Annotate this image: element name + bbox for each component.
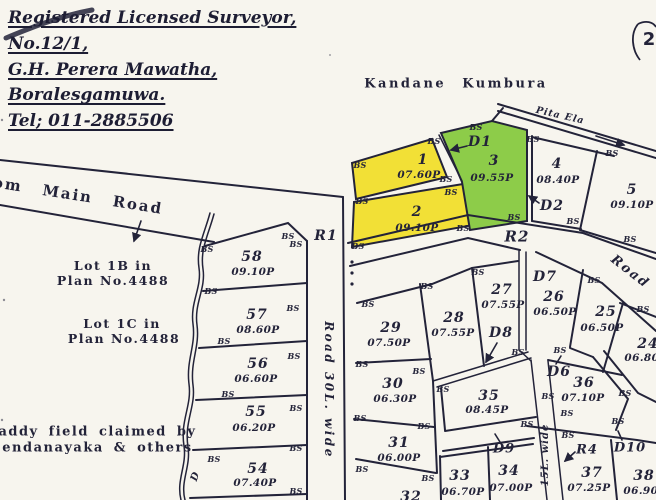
bs-marker: BS <box>588 275 601 285</box>
surveyor-phone: Tel; 011-2885506 <box>8 109 174 135</box>
lot-29-number: 29 <box>380 321 401 335</box>
bs-marker: BS <box>290 403 303 413</box>
drain-ref-d7: D7 <box>533 270 557 284</box>
bs-marker: BS <box>470 122 483 132</box>
road-ref-r4: R4 <box>576 444 598 457</box>
paddy-field-note-line1: Paddy field claimed by <box>0 426 196 439</box>
bs-marker: BS <box>554 345 567 355</box>
lot-28-area: 07.55P <box>431 328 474 339</box>
lot-30-area: 06.30P <box>373 394 416 405</box>
surveyor-town: Boralesgamuwa. <box>8 83 165 109</box>
drain-ref-d8: D8 <box>489 326 513 340</box>
bs-marker: BS <box>201 244 214 254</box>
survey-plan-scan: Registered Licensed Surveyor, No.12/1, G… <box>0 0 656 500</box>
lot-33-number: 33 <box>449 469 470 483</box>
surveyor-number: No.12/1, <box>8 32 88 58</box>
lot-2-number: 2 <box>412 205 423 219</box>
bs-marker: BS <box>362 299 375 309</box>
main-road-arrow <box>134 221 141 241</box>
kandane-kumbura-label: Kandane Kumbura <box>364 78 547 91</box>
bs-marker: BS <box>612 416 625 426</box>
lot-37-number: 37 <box>581 466 602 480</box>
lot-1-area: 07.60P <box>397 170 440 181</box>
lot-58-number: 58 <box>241 250 262 264</box>
lot-34-number: 34 <box>498 464 519 478</box>
bs-marker: BS <box>290 239 303 249</box>
lot-3-area: 09.55P <box>470 173 513 184</box>
bs-marker: BS <box>290 443 303 453</box>
bs-marker: BS <box>624 234 637 244</box>
bs-marker: BS <box>413 366 426 376</box>
bs-marker: BS <box>521 419 534 429</box>
lot-36-number: 36 <box>573 376 594 390</box>
lot-56-number: 56 <box>247 357 268 371</box>
lot-56-area: 06.60P <box>234 374 277 385</box>
bs-marker: BS <box>472 267 485 277</box>
bs-marker: BS <box>354 413 367 423</box>
lot-35-area: 08.45P <box>465 405 508 416</box>
r4-arrow <box>565 452 575 461</box>
lot-32-number: 32 <box>400 490 421 500</box>
lot-25-area: 06.50P <box>580 323 623 334</box>
lot-33-area: 06.70P <box>441 487 484 498</box>
bs-marker: BS <box>290 486 303 496</box>
bs-marker: BS <box>428 136 441 146</box>
paddy-field-note-line2: Sendanayaka & others <box>0 442 193 455</box>
lot-26-area: 06.50P <box>533 307 576 318</box>
lot-1-number: 1 <box>418 153 429 167</box>
road-30-wide-label: Road 30L. wide <box>323 321 335 459</box>
bs-marker: BS <box>637 304 650 314</box>
lot-30-number: 30 <box>382 377 403 391</box>
lot-31-number: 31 <box>388 436 409 450</box>
lot-1c-note-line2: Plan No.4488 <box>68 333 180 346</box>
bs-marker: BS <box>562 430 575 440</box>
road-ref-r1: R1 <box>314 229 337 243</box>
lot-24-area: 06.80P <box>624 353 656 364</box>
bs-marker: BS <box>561 408 574 418</box>
bs-marker: BS <box>457 223 470 233</box>
lot-35-number: 35 <box>478 389 499 403</box>
bs-marker: BS <box>356 196 369 206</box>
lot-38-number: 38 <box>633 469 654 483</box>
bs-marker: BS <box>208 454 221 464</box>
bs-marker: BS <box>356 359 369 369</box>
bs-marker: BS <box>288 351 301 361</box>
lot-55-area: 06.20P <box>232 423 275 434</box>
lot-5-number: 5 <box>627 183 638 197</box>
lot-2-area: 09.10P <box>395 223 438 234</box>
surveyor-title: Registered Licensed Surveyor, <box>8 6 296 32</box>
lot-57-number: 57 <box>246 308 267 322</box>
lot-24-number: 24 <box>637 337 656 351</box>
bs-marker: BS <box>440 174 453 184</box>
drain-ref-d6: D6 <box>547 365 571 379</box>
drain-ref-d2: D2 <box>540 199 564 213</box>
lot-3-number: 3 <box>489 154 500 168</box>
bs-marker: BS <box>508 212 521 222</box>
page-mark-number: 2 <box>643 31 656 49</box>
bs-marker: BS <box>421 281 434 291</box>
bs-marker: BS <box>437 384 450 394</box>
road-15-wide-label: 15L. wide <box>541 424 551 487</box>
bs-marker: BS <box>445 187 458 197</box>
bs-marker: BS <box>606 148 619 158</box>
bs-marker: BS <box>619 388 632 398</box>
drain-ref-d9: D9 <box>493 443 515 456</box>
bs-marker: BS <box>222 389 235 399</box>
d8-arrow <box>486 343 497 362</box>
bs-marker: BS <box>422 473 435 483</box>
lot-36-area: 07.10P <box>561 393 604 404</box>
lot-4-number: 4 <box>552 157 563 171</box>
lot-31-area: 06.00P <box>377 453 420 464</box>
lot-4-area: 08.40P <box>536 175 579 186</box>
lot-5-area: 09.10P <box>610 200 653 211</box>
bs-marker: BS <box>218 336 231 346</box>
surveyor-address-block: Registered Licensed Surveyor, No.12/1, G… <box>8 6 296 135</box>
bs-marker: BS <box>205 286 218 296</box>
bs-marker: BS <box>352 241 365 251</box>
lot-1c-note-line1: Lot 1C in <box>83 318 161 331</box>
lot-58-area: 09.10P <box>231 267 274 278</box>
surveyor-street: G.H. Perera Mawatha, <box>8 58 217 84</box>
bs-marker: BS <box>567 216 580 226</box>
lot-27-number: 27 <box>491 283 512 297</box>
bs-marker: BS <box>512 347 525 357</box>
bs-marker: BS <box>542 391 555 401</box>
lot-1b-note-line1: Lot 1B in <box>74 260 152 273</box>
bs-marker: BS <box>354 160 367 170</box>
lot-25-number: 25 <box>595 305 616 319</box>
lot-26-number: 26 <box>543 290 564 304</box>
lot-37-area: 07.25P <box>567 483 610 494</box>
bs-marker: BS <box>527 134 540 144</box>
drain-ref-d1: D1 <box>468 135 492 149</box>
lot-54-area: 07.40P <box>233 478 276 489</box>
lot-27-area: 07.55P <box>481 300 524 311</box>
lot-38-area: 06.90P <box>623 486 656 497</box>
bs-marker: BS <box>287 303 300 313</box>
lot-34-area: 07.00P <box>489 483 532 494</box>
d2-arrow <box>529 196 539 203</box>
lot-28-number: 28 <box>443 311 464 325</box>
drain-ref-d10: D10 <box>614 442 646 455</box>
road-ref-r2: R2 <box>505 230 530 245</box>
lot-57-area: 08.60P <box>236 325 279 336</box>
lot-1b-note-line2: Plan No.4488 <box>57 275 169 288</box>
lot-54-number: 54 <box>247 462 268 476</box>
lot-55-number: 55 <box>245 405 266 419</box>
bs-marker: BS <box>418 421 431 431</box>
bs-marker: BS <box>356 464 369 474</box>
lot-29-area: 07.50P <box>367 338 410 349</box>
